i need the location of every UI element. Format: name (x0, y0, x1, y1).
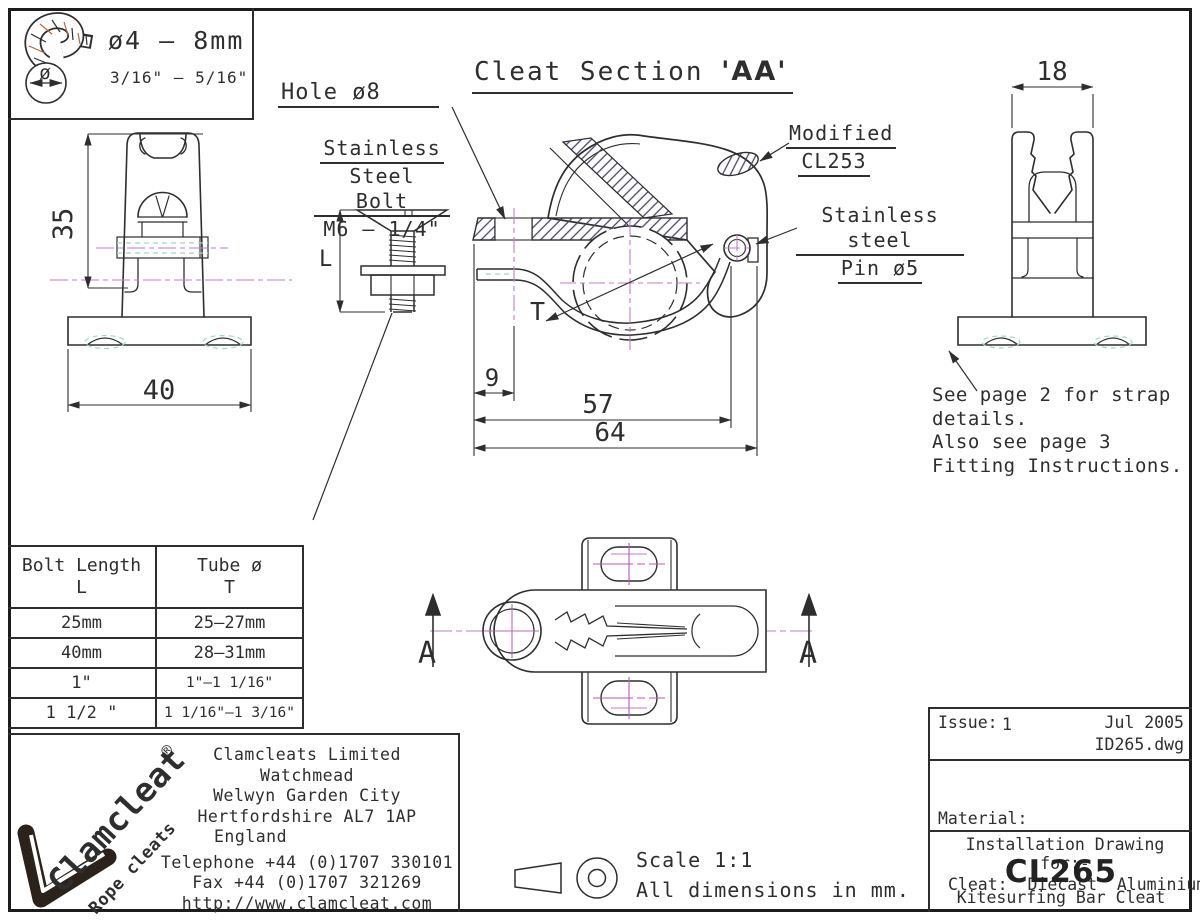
section-title: Cleat Section 'AA' (472, 56, 793, 94)
company-fax: Fax +44 (0)1707 321269 (156, 873, 458, 894)
strap-note: See page 2 for strap details. Also see p… (932, 384, 1183, 478)
table-header-bolt-length: Bolt Length L (8, 547, 157, 607)
table-cell-length: 25mm (8, 609, 157, 637)
table-cell-tube: 1"–1 1/16" (157, 669, 302, 697)
table-header-tube-dia: Tube ø T (157, 547, 302, 607)
issue-value: 1 (1002, 715, 1012, 734)
table-row: 40mm 28–31mm (8, 637, 302, 667)
table-row: 1 1/2 " 1 1/16"–1 3/16" (8, 697, 302, 727)
table-cell-length: 1" (8, 669, 157, 697)
bolt-drawing: L (315, 200, 475, 335)
dim-overall-label: 64 (594, 418, 625, 448)
company-phone: Telephone +44 (0)1707 330101 (156, 853, 458, 874)
scale-value: Scale 1:1 (636, 845, 910, 875)
section-title-text: Cleat Section (474, 57, 704, 87)
section-title-ref: 'AA' (721, 56, 787, 87)
issue-date: Jul 2005 (1105, 713, 1184, 732)
dim-front-height-label: 35 (48, 208, 79, 241)
table-cell-tube: 25–27mm (157, 609, 302, 637)
rope-dia-symbol: ø (39, 62, 50, 84)
strap-note-line: Fitting Instructions. (932, 455, 1183, 479)
drawing-file-name: ID265.dwg (1095, 735, 1184, 754)
company-name: Clamcleats Limited (156, 745, 458, 766)
table-header-tube-dia-line2: T (224, 577, 235, 599)
projection-symbol-icon (502, 842, 632, 902)
callout-hole-text: Hole ø8 (278, 80, 439, 108)
title-block-issue-row: Issue: 1 Jul 2005 ID265.dwg (930, 709, 1192, 761)
table-cell-tube: 1 1/16"–1 3/16" (157, 699, 302, 727)
strap-note-line: See page 2 for strap (932, 384, 1183, 408)
callout-bolt-line1: Stainless (320, 136, 443, 164)
issue-label: Issue: (938, 713, 998, 732)
dim-front-width-label: 40 (143, 375, 176, 406)
section-arrow-a-right-label: A (799, 636, 817, 671)
rope-size-imperial: 3/16" – 5/16" (110, 68, 248, 87)
dim-pin-centre-label: 57 (582, 390, 613, 420)
front-view-drawing: 35 40 (28, 116, 318, 428)
drawing-sheet: ø ø4 – 8mm 3/16" – 5/16" Cleat Section '… (0, 0, 1200, 924)
scale-block: Scale 1:1 All dimensions in mm. (636, 845, 910, 905)
strap-note-line: Also see page 3 (932, 431, 1183, 455)
table-row: 1" 1"–1 1/16" (8, 667, 302, 697)
table-cell-length: 40mm (8, 639, 157, 667)
company-address-line: Hertfordshire AL7 1AP (156, 807, 458, 828)
company-box: Clamcleat ® Rope cleats Clamcleats Limit… (8, 733, 460, 912)
title-block: Issue: 1 Jul 2005 ID265.dwg Material: Cl… (928, 707, 1192, 912)
material-label: Material: (938, 808, 1200, 830)
table-header-tube-dia-line1: Tube ø (197, 555, 262, 577)
table-row: 25mm 25–27mm (8, 607, 302, 637)
section-aa-drawing: T 9 57 64 (460, 128, 930, 468)
rope-size-metric: ø4 – 8mm (108, 26, 244, 55)
rope-size-box: ø ø4 – 8mm 3/16" – 5/16" (8, 8, 254, 120)
part-name: Kitesurfing Bar Cleat (930, 888, 1192, 907)
table-header-row: Bolt Length L Tube ø T (8, 547, 302, 607)
title-block-part-row: Installation Drawing for:- CL265 Kitesur… (930, 832, 1192, 912)
section-arrow-a-left-label: A (418, 636, 436, 671)
company-address-line: England (156, 827, 458, 848)
dim-bolt-length-label: L (319, 247, 332, 272)
table-header-bolt-length-line2: L (76, 577, 87, 599)
strap-note-line: details. (932, 408, 1183, 432)
table-cell-length: 1 1/2 " (8, 699, 157, 727)
units-note: All dimensions in mm. (636, 875, 910, 905)
plan-view-drawing: A A (405, 520, 845, 735)
dim-offset-label: 9 (485, 364, 499, 392)
dim-side-width-label: 18 (1036, 57, 1067, 87)
title-block-material-row: Material: Cleat: Diecast Aluminium Strap… (930, 761, 1192, 832)
part-number: CL265 (930, 854, 1192, 890)
rope-icon: ø (16, 12, 112, 112)
company-address-line: Welwyn Garden City (156, 786, 458, 807)
company-address: Clamcleats Limited Watchmead Welwyn Gard… (156, 745, 458, 914)
side-view-drawing: 18 (925, 62, 1175, 362)
company-address-line: Watchmead (156, 766, 458, 787)
company-website: http://www.clamcleat.com (156, 894, 458, 915)
bolt-tube-table: Bolt Length L Tube ø T 25mm 25–27mm 40mm… (8, 545, 304, 729)
dim-tube-t-label: T (530, 297, 545, 326)
table-cell-tube: 28–31mm (157, 639, 302, 667)
callout-hole: Hole ø8 (278, 80, 439, 108)
table-header-bolt-length-line1: Bolt Length (22, 555, 141, 577)
